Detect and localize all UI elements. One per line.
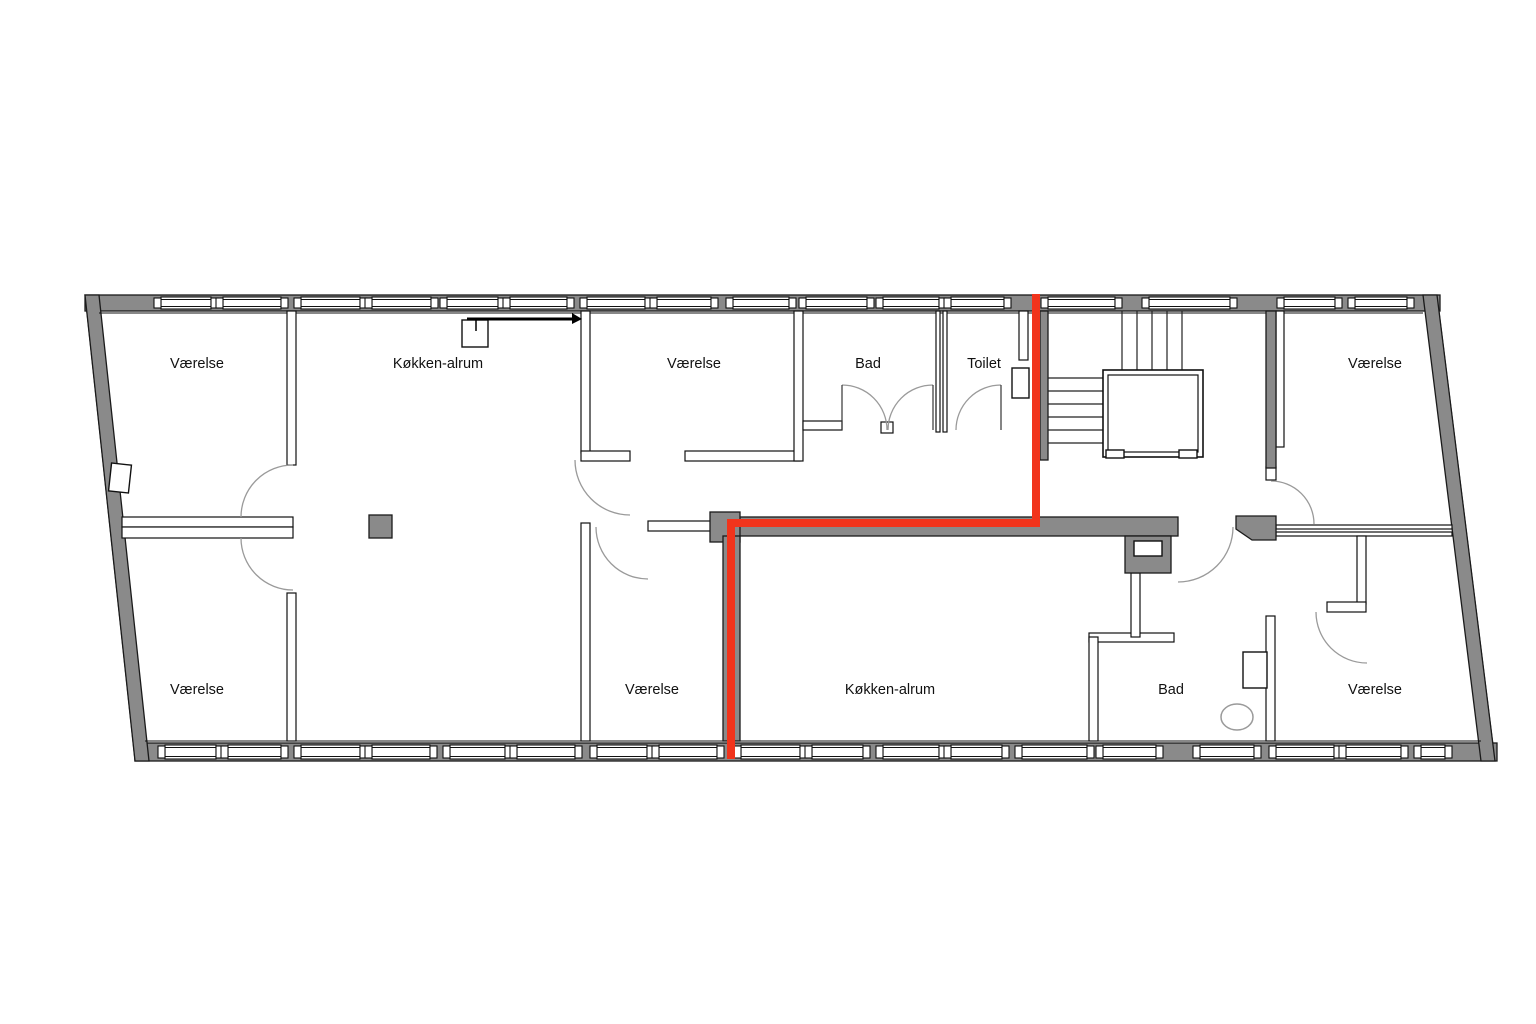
window <box>1142 298 1149 308</box>
window <box>1277 298 1284 308</box>
window <box>789 298 796 308</box>
wall-stairwell-left <box>1040 311 1048 460</box>
elevator-door-right <box>1179 450 1197 458</box>
window <box>1156 746 1163 758</box>
room-label-koekken-alrum-top: Køkken-alrum <box>393 356 483 372</box>
window <box>154 298 161 308</box>
elevator-door-left <box>1106 450 1124 458</box>
window <box>733 297 789 309</box>
wall-vaerelse1-koekken <box>287 311 296 465</box>
window <box>1048 297 1115 309</box>
column-koekken <box>369 515 392 538</box>
window <box>1002 746 1009 758</box>
window <box>431 298 438 308</box>
window <box>1230 298 1237 308</box>
wall-vaerelse-bl <box>287 593 296 741</box>
window <box>430 746 437 758</box>
window <box>944 298 951 308</box>
wall-bad-top-bottom <box>803 421 842 430</box>
window <box>1087 746 1094 758</box>
room-label-vaerelse-top-left: Værelse <box>170 356 224 372</box>
toilet-sink <box>1012 368 1029 398</box>
wall-hall-vaerelse-br <box>1357 536 1366 604</box>
window <box>1269 746 1276 758</box>
window <box>587 297 645 309</box>
wall-entry-upper <box>122 517 293 527</box>
window <box>1348 298 1355 308</box>
window <box>223 297 281 309</box>
window <box>711 298 718 308</box>
duct-notch <box>1134 541 1162 556</box>
window <box>1193 746 1200 758</box>
window <box>216 298 223 308</box>
window <box>799 298 806 308</box>
window <box>447 297 498 309</box>
window <box>1096 746 1103 758</box>
window <box>1284 297 1335 309</box>
room-label-vaerelse-bottom-center: Værelse <box>625 682 679 698</box>
wall-vaerelse-tr-left <box>1276 311 1284 447</box>
elevator-cab <box>1108 375 1198 452</box>
wall-bad-toilet-a <box>936 311 940 432</box>
window <box>294 746 301 758</box>
wall-koekken-vaerelse-tc <box>581 311 590 453</box>
room-label-toilet: Toilet <box>967 356 1001 372</box>
room-label-vaerelse-top-center: Værelse <box>667 356 721 372</box>
wall-hall-jog <box>1327 602 1366 612</box>
window <box>510 746 517 758</box>
window <box>717 746 724 758</box>
wall-bad-b-left <box>1089 637 1098 741</box>
highlight-segment-vertical-bottom <box>727 519 735 759</box>
window <box>503 298 510 308</box>
window <box>158 746 165 758</box>
window <box>805 746 812 758</box>
wall-bad-toilet-b <box>943 311 947 432</box>
top-window-band <box>154 297 1414 309</box>
room-label-bad-top: Bad <box>855 356 881 372</box>
window <box>1149 297 1230 309</box>
window <box>221 746 228 758</box>
window <box>1115 298 1122 308</box>
floor-plan-drawing: Værelse Køkken-alrum Værelse Bad Toilet … <box>0 0 1536 1024</box>
highlight-segment-vertical-top <box>1032 294 1040 525</box>
window <box>440 298 447 308</box>
window <box>575 746 582 758</box>
wall-stairwell-right <box>1266 311 1276 468</box>
window <box>365 746 372 758</box>
window <box>281 298 288 308</box>
wall-corridor-light <box>648 521 712 531</box>
window <box>876 746 883 758</box>
window <box>294 298 301 308</box>
window <box>580 298 587 308</box>
room-label-koekken-alrum-bottom: Køkken-alrum <box>845 682 935 698</box>
window <box>443 746 450 758</box>
bath-fixture <box>1243 652 1267 688</box>
window <box>951 297 1004 309</box>
highlight-segment-horizontal <box>728 519 1040 527</box>
stair-wall-cap <box>1266 467 1276 480</box>
window <box>806 297 867 309</box>
window <box>590 746 597 758</box>
window <box>883 297 939 309</box>
wall-vaerelse-tr-bottom-a <box>1276 525 1452 529</box>
window <box>1041 298 1048 308</box>
window <box>863 746 870 758</box>
window <box>301 297 360 309</box>
window <box>652 746 659 758</box>
window <box>372 297 431 309</box>
wall-bad-b-step <box>1131 573 1140 637</box>
floor-plan-page: Værelse Køkken-alrum Værelse Bad Toilet … <box>0 0 1536 1024</box>
wall-vaerelse-tc-bottom <box>685 451 800 461</box>
wall-vaerelse-tc-right <box>794 311 803 461</box>
window <box>1015 746 1022 758</box>
window <box>734 746 741 758</box>
wall-vaerelse-tc-foot <box>581 451 630 461</box>
window <box>1254 746 1261 758</box>
window <box>867 298 874 308</box>
window <box>567 298 574 308</box>
window <box>650 298 657 308</box>
window <box>1407 298 1414 308</box>
kitchen-sink <box>462 320 488 347</box>
window <box>726 298 733 308</box>
window <box>161 297 211 309</box>
wall-toilet-stub <box>1019 311 1028 360</box>
window <box>1414 746 1421 758</box>
window <box>1355 297 1407 309</box>
wall-niche <box>109 463 132 493</box>
window <box>1335 298 1342 308</box>
window <box>944 746 951 758</box>
room-label-bad-bottom: Bad <box>1158 682 1184 698</box>
room-label-vaerelse-bottom-left: Værelse <box>170 682 224 698</box>
window <box>876 298 883 308</box>
window <box>510 297 567 309</box>
window <box>1445 746 1452 758</box>
window <box>1401 746 1408 758</box>
wall-vaerelse-bc-left <box>581 523 590 741</box>
window <box>1004 298 1011 308</box>
wall-entry-lower <box>122 527 293 538</box>
room-label-vaerelse-top-right: Værelse <box>1348 356 1402 372</box>
room-label-vaerelse-bottom-right: Værelse <box>1348 682 1402 698</box>
window <box>281 746 288 758</box>
window <box>1339 746 1346 758</box>
window <box>657 297 711 309</box>
bottom-window-band <box>158 745 1452 759</box>
window <box>365 298 372 308</box>
